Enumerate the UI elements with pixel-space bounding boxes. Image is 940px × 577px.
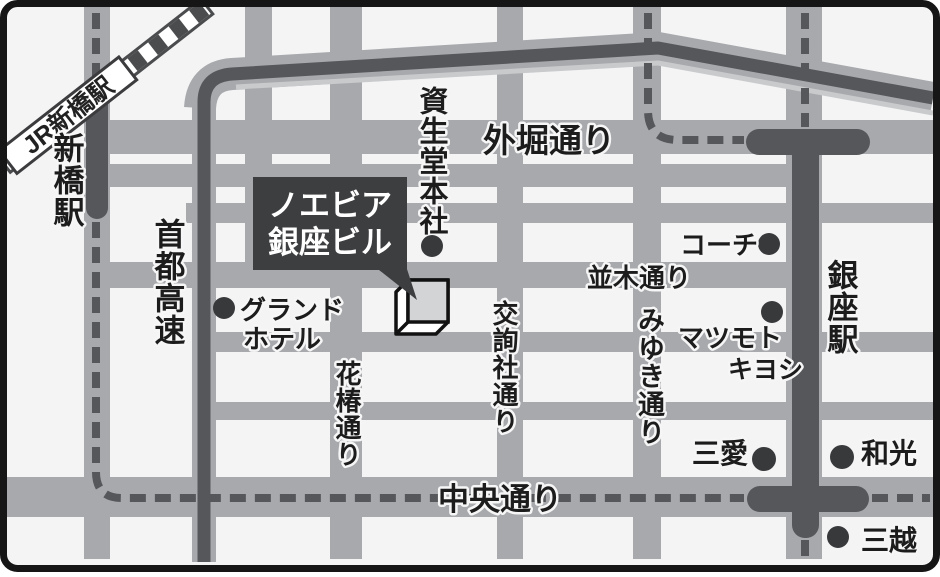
street-row6 bbox=[196, 402, 933, 420]
miyuki-dori-label: みゆき通り bbox=[634, 306, 665, 446]
sanai-dot bbox=[752, 447, 776, 471]
shiseido-dot bbox=[421, 235, 443, 257]
street-kojunsha-dori bbox=[497, 7, 523, 559]
sotobori-dori-label: 外堀通り bbox=[483, 122, 615, 159]
ginza-dark-road bbox=[792, 140, 819, 538]
shimbashi-station-label: 新橋駅 bbox=[49, 132, 85, 228]
map-canvas: JR新橋駅 外堀通り 中央通り 並木通り 新橋駅 首都高速 資生堂本社 銀座駅 … bbox=[0, 0, 940, 572]
kojunsha-dori-label: 交詢社通り bbox=[489, 299, 519, 435]
ginza-station-label: 銀座駅 bbox=[823, 259, 859, 355]
coach-label: コーチ bbox=[680, 230, 758, 260]
grand-hotel-label-line1: グランド bbox=[240, 295, 344, 325]
matsumoto-kiyoshi-dot bbox=[761, 301, 783, 323]
grand-hotel-dot bbox=[213, 297, 235, 319]
ginza-station-bar-south bbox=[747, 486, 869, 512]
coach-dot bbox=[758, 233, 780, 255]
ginza-station-bar-north bbox=[746, 129, 870, 155]
namiki-dori-label: 並木通り bbox=[587, 263, 691, 293]
chuo-dori-label: 中央通り bbox=[438, 482, 562, 517]
sanai-label: 三愛 bbox=[692, 438, 748, 469]
hanatsubaki-dori-label: 花椿通り bbox=[332, 360, 362, 468]
matsumoto-label-line2: キヨシ bbox=[728, 356, 803, 384]
mitsukoshi-dot bbox=[827, 526, 849, 548]
shiseido-hq-label: 資生堂本社 bbox=[415, 86, 449, 236]
destination-label-line1: ノエビア bbox=[268, 188, 392, 223]
wako-dot bbox=[830, 445, 854, 469]
grand-hotel-label-line2: ホテル bbox=[243, 324, 321, 354]
matsumoto-label-line1: マツモト bbox=[678, 323, 782, 353]
destination-label-line2: 銀座ビル bbox=[268, 225, 392, 260]
shuto-expressway-label: 首都高速 bbox=[150, 218, 187, 346]
mitsukoshi-label: 三越 bbox=[861, 525, 918, 556]
street-hanatsubaki-dori bbox=[330, 7, 362, 559]
wako-label: 和光 bbox=[861, 438, 917, 469]
ginza-area-map: JR新橋駅 外堀通り 中央通り 並木通り 新橋駅 首都高速 資生堂本社 銀座駅 … bbox=[0, 0, 940, 572]
